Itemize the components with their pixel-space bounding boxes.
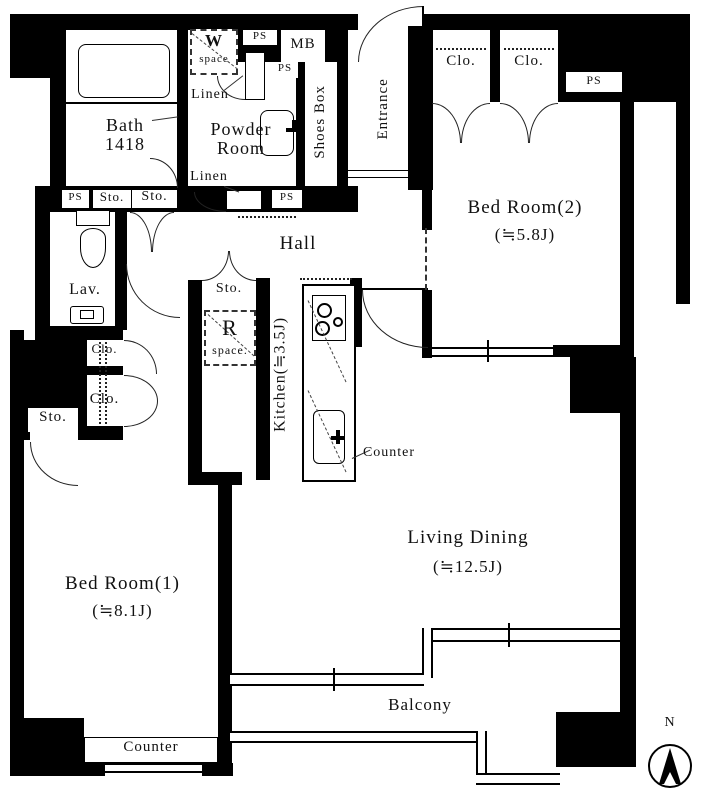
wall-bedroom2-right bbox=[620, 90, 634, 357]
clo2-door-left bbox=[500, 103, 529, 143]
sto-band-door-left bbox=[130, 212, 152, 252]
wall-bottom-right bbox=[202, 763, 233, 776]
bedroom2-name: Bed Room(2) bbox=[430, 198, 620, 218]
wall-clo-bottom bbox=[87, 426, 123, 440]
linen-cabinet-powder bbox=[245, 52, 265, 100]
wall-lav-right bbox=[115, 208, 127, 330]
sto-center-door-right bbox=[229, 251, 256, 281]
shoes-box-label: Shoes Box bbox=[313, 57, 329, 187]
toilet-tank bbox=[76, 210, 110, 226]
floor-plan: Bath 1418 Powder Room Linen Linen W spac… bbox=[0, 0, 701, 800]
clo2-rod-dotted bbox=[504, 48, 554, 50]
wall-left-lower bbox=[10, 330, 24, 776]
balcony-rail-top bbox=[230, 731, 482, 743]
bedroom1-size: (≒8.1J) bbox=[30, 602, 215, 620]
wall-right-lower bbox=[620, 357, 636, 717]
hall-boundary-dotted-2 bbox=[300, 278, 352, 280]
window-tick-living-right bbox=[508, 623, 510, 647]
hall-boundary-dotted-1 bbox=[238, 216, 296, 218]
clo-mid2-door-lower bbox=[124, 401, 158, 427]
entrance-threshold-2 bbox=[348, 177, 408, 178]
kitchen-label: Kitchen(≒3.5J) bbox=[273, 269, 290, 479]
linen-label-hall: Linen bbox=[186, 170, 232, 185]
window-bedroom2-bottom bbox=[432, 347, 553, 357]
bath-label-line1: Bath bbox=[80, 116, 170, 135]
sto-center-label: Sto. bbox=[202, 282, 256, 297]
toilet-bowl bbox=[80, 228, 106, 268]
living-name: Living Dining bbox=[358, 528, 578, 548]
sto-left-doorframe bbox=[30, 432, 78, 442]
wall-rspace-left bbox=[188, 280, 202, 480]
balcony-rail-bottom bbox=[476, 773, 560, 785]
clo-label-2: Clo. bbox=[500, 54, 558, 70]
wall-bath-powder-divider bbox=[177, 28, 188, 188]
lav-sink-inner bbox=[80, 310, 94, 319]
powder-room-label: Powder Room bbox=[188, 120, 294, 158]
sto-label-band2: Sto. bbox=[132, 190, 177, 205]
wall-bedroom2-bottom bbox=[553, 345, 620, 357]
bedroom2-size: (≒5.8J) bbox=[430, 226, 620, 244]
powder-label-line1: Powder bbox=[188, 120, 294, 139]
wall-lav-bottom bbox=[35, 326, 123, 340]
kitchen-faucet-v bbox=[336, 430, 340, 444]
wall-lav-left bbox=[35, 186, 50, 334]
hall-living-door-arc bbox=[362, 290, 428, 348]
sto-label-band1: Sto. bbox=[93, 190, 131, 204]
ps-label-top: PS bbox=[243, 31, 277, 43]
bath-label: Bath 1418 bbox=[80, 116, 170, 154]
entrance-threshold-1 bbox=[348, 170, 408, 171]
clo-mid1-door-arc bbox=[124, 340, 157, 374]
linen-label-powder: Linen bbox=[186, 88, 234, 103]
window-living-step bbox=[422, 628, 433, 678]
bathtub bbox=[78, 44, 170, 98]
clo1-door-left bbox=[432, 103, 461, 143]
mb-label: MB bbox=[281, 37, 325, 53]
north-label: N bbox=[646, 716, 694, 731]
wall-bedroom1-bl-chunk bbox=[24, 718, 84, 765]
hall-living-door-leaf bbox=[362, 288, 428, 290]
ps-label-topright: PS bbox=[566, 74, 622, 87]
bath-floor-line bbox=[66, 102, 177, 104]
ps-label-band: PS bbox=[62, 192, 89, 204]
hall-label: Hall bbox=[268, 234, 328, 254]
counter-label-bedroom1: Counter bbox=[84, 740, 218, 756]
wall-clo-pair-sep bbox=[490, 30, 500, 102]
linen-cabinet-hall bbox=[226, 190, 262, 210]
ps-label-band2: PS bbox=[272, 192, 302, 204]
wall-rspace-right bbox=[256, 278, 270, 480]
wall-shoesbox-right bbox=[337, 62, 348, 188]
lav-label: Lav. bbox=[60, 282, 110, 299]
w-space-letter: W bbox=[190, 32, 238, 50]
sto-center-door-left bbox=[202, 251, 229, 281]
bedroom2-opening-dashed bbox=[425, 228, 427, 290]
window-bedroom1-bottom bbox=[105, 763, 202, 773]
window-tick-living-left bbox=[333, 668, 335, 691]
balcony-label: Balcony bbox=[368, 696, 472, 714]
entrance-door-leaf bbox=[422, 6, 424, 64]
clo1-door-right bbox=[461, 103, 490, 143]
compass-needle-notch bbox=[664, 772, 676, 784]
clo1-rod-dotted bbox=[436, 48, 486, 50]
clo2-door-right bbox=[529, 103, 558, 143]
w-space-word: space bbox=[190, 54, 238, 66]
lav-door-arc bbox=[126, 264, 180, 318]
counter-label-kitchen: Counter bbox=[356, 446, 422, 461]
living-size: (≒12.5J) bbox=[358, 558, 578, 576]
r-space-letter: R bbox=[206, 316, 254, 339]
wall-bottomright-chunk bbox=[556, 712, 636, 767]
window-living-left bbox=[230, 673, 424, 686]
clo-mid2-door-upper bbox=[124, 375, 158, 401]
sto-left-door-arc bbox=[30, 442, 78, 486]
sto-left-label: Sto. bbox=[28, 410, 78, 426]
bath-door-arc bbox=[150, 158, 178, 188]
wall-shoesbox-left bbox=[296, 62, 305, 188]
r-space-word: space. bbox=[206, 344, 254, 357]
entrance-label: Entrance bbox=[376, 49, 392, 169]
bedroom1-name: Bed Room(1) bbox=[30, 574, 215, 594]
wall-topleft-chunk bbox=[10, 14, 55, 78]
wall-bedroom1-right bbox=[218, 485, 232, 763]
stove-burner-1 bbox=[317, 303, 332, 318]
clo-label-1: Clo. bbox=[432, 54, 490, 70]
window-living-right bbox=[433, 628, 620, 642]
stove-burner-3 bbox=[333, 317, 343, 327]
wall-bath-left bbox=[50, 30, 66, 190]
wall-corridor-bottom bbox=[188, 472, 242, 485]
ps-label-mid: PS bbox=[272, 63, 298, 75]
bath-label-line2: 1418 bbox=[80, 135, 170, 154]
window-tick-bedroom2 bbox=[487, 340, 489, 362]
powder-label-line2: Room bbox=[188, 139, 294, 158]
clo-mid2-label: Clo. bbox=[87, 392, 122, 408]
wall-outer-right bbox=[676, 14, 690, 304]
sto-band-door-right bbox=[152, 212, 174, 252]
clo-mid1-label: Clo. bbox=[87, 342, 122, 356]
